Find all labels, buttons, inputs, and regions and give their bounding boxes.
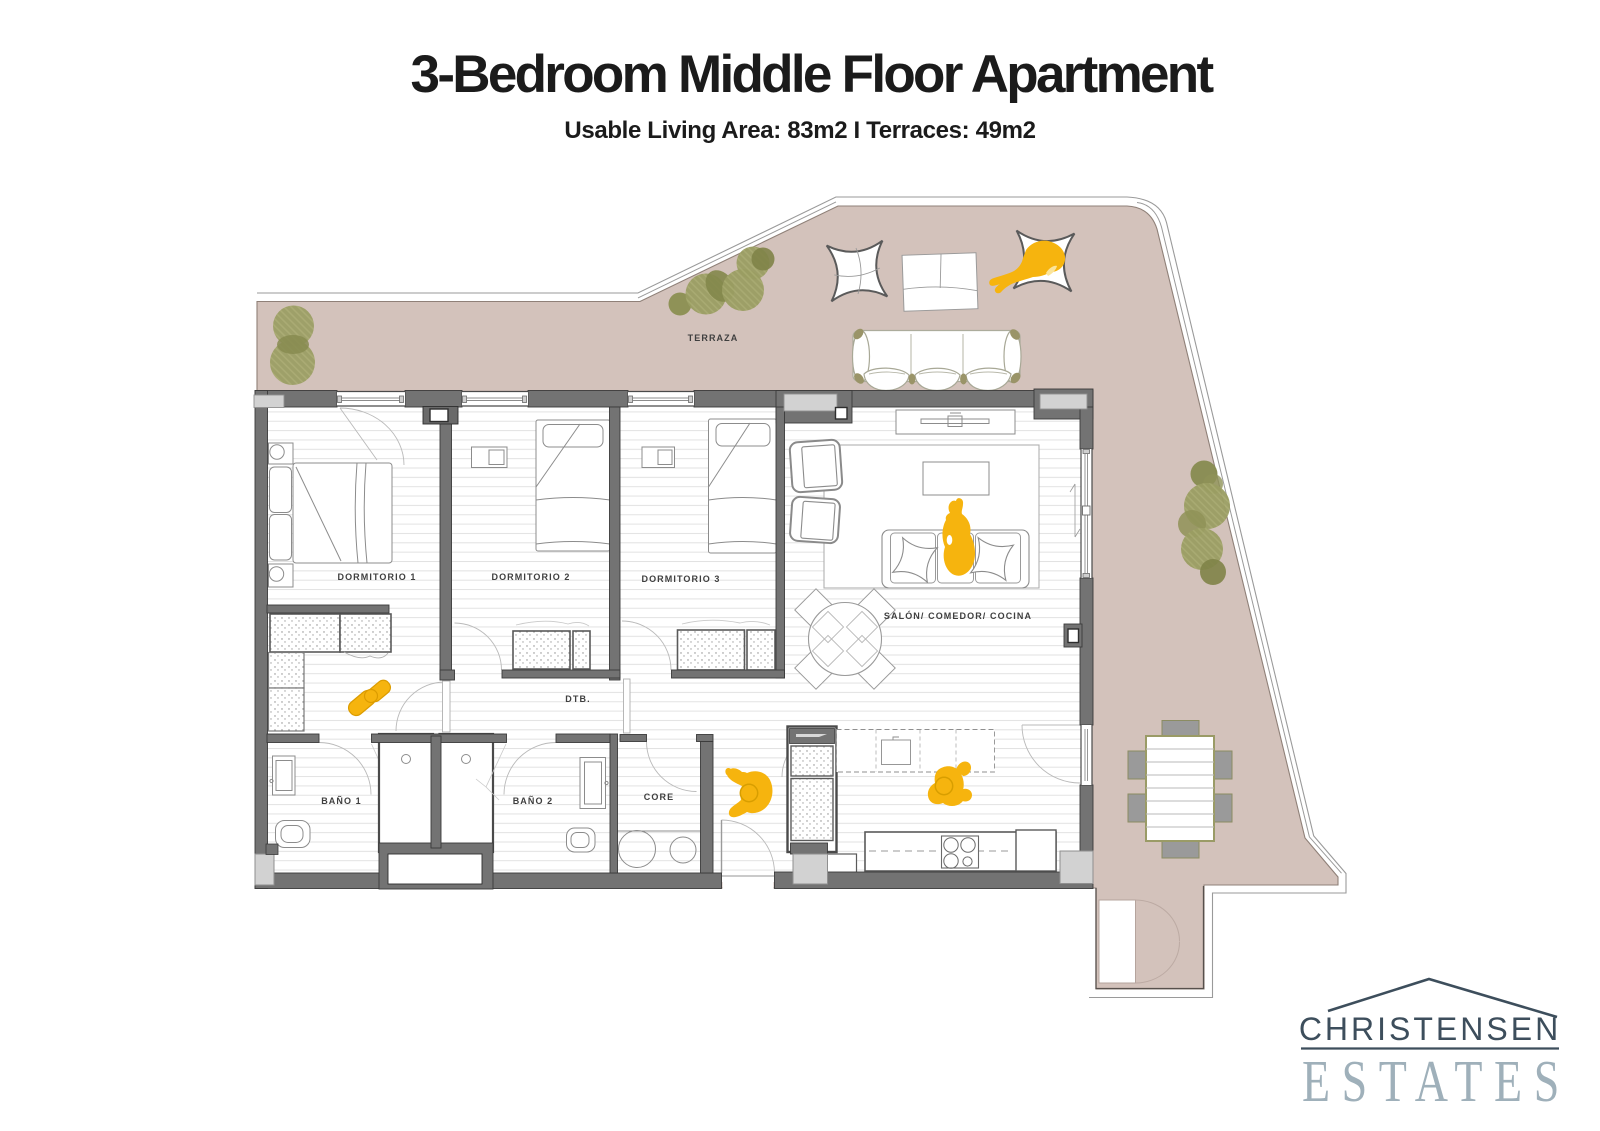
svg-text:CHRISTENSEN: CHRISTENSEN [1299,1011,1561,1047]
svg-text:TERRAZA: TERRAZA [688,333,739,343]
svg-text:Usable Living Area: 83m2 I Ter: Usable Living Area: 83m2 I Terraces: 49m… [564,117,1035,144]
svg-text:BAÑO 1: BAÑO 1 [321,796,362,806]
svg-text:SALÓN/ COMEDOR/ COCINA: SALÓN/ COMEDOR/ COCINA [884,610,1032,621]
svg-text:CORE: CORE [644,792,674,802]
svg-text:DORMITORIO 2: DORMITORIO 2 [491,572,570,582]
svg-text:DTB.: DTB. [565,694,590,704]
svg-text:BAÑO 2: BAÑO 2 [513,796,554,806]
svg-text:DORMITORIO 3: DORMITORIO 3 [641,574,720,584]
svg-text:3-Bedroom Middle Floor Apartme: 3-Bedroom Middle Floor Apartment [411,45,1214,104]
svg-text:DORMITORIO 1: DORMITORIO 1 [337,572,416,582]
svg-text:ESTATES: ESTATES [1302,1050,1571,1115]
